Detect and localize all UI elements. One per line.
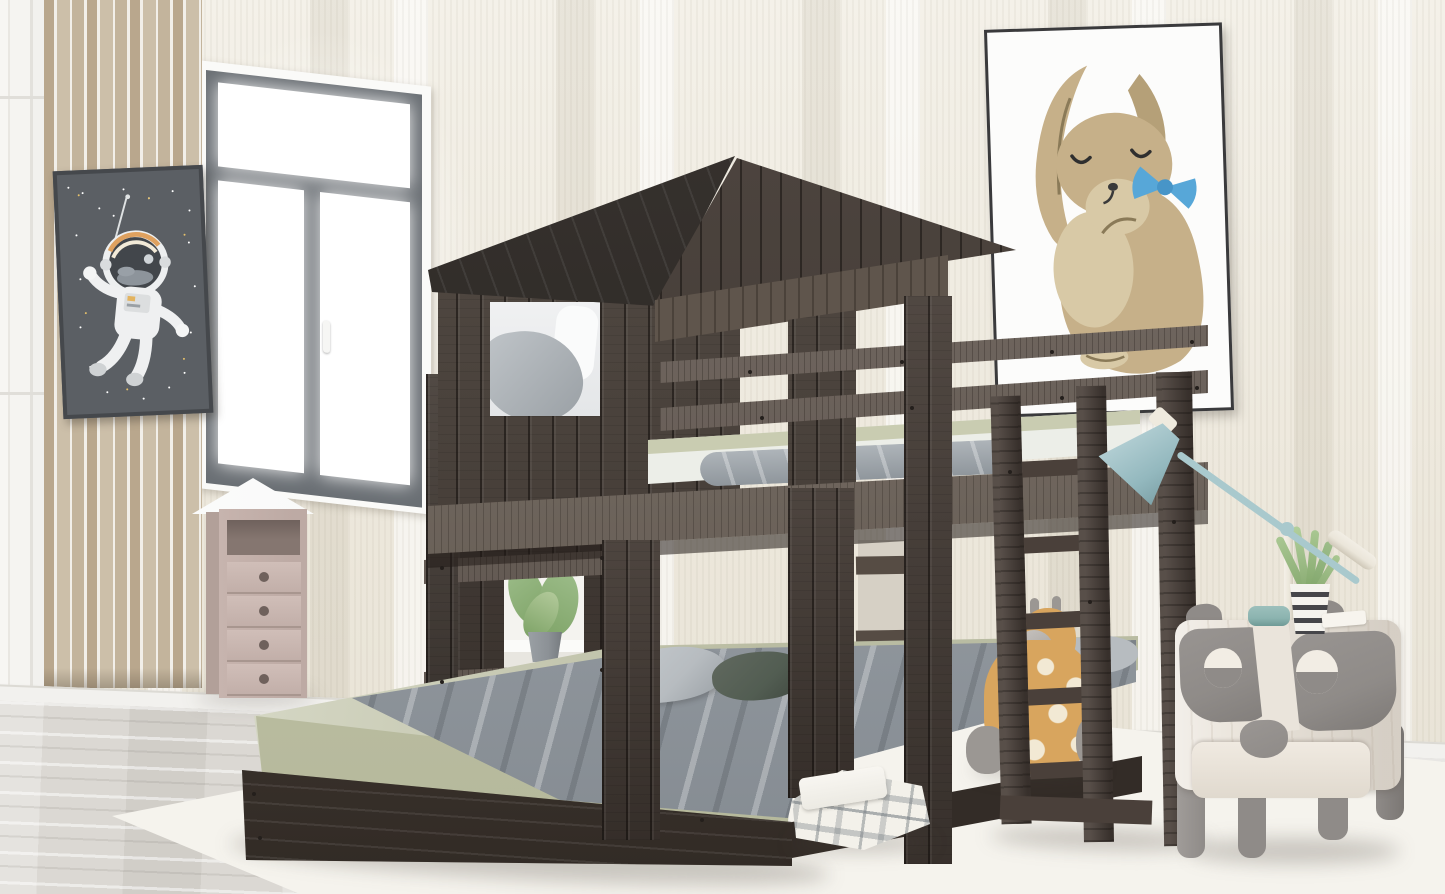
astronaut-illustration	[57, 169, 201, 407]
window-casement-right-pane	[320, 192, 410, 485]
bunny-poster	[984, 22, 1234, 417]
window	[197, 60, 431, 515]
astronaut-poster	[53, 165, 214, 419]
floor-lamp-pole	[1284, 528, 1293, 644]
window-handle	[323, 320, 330, 353]
door-trim-molding	[0, 96, 46, 99]
window-casement-left-pane	[218, 180, 304, 473]
bedroom-scene	[0, 0, 1445, 894]
left-white-wall	[0, 0, 46, 710]
bunny-illustration	[987, 34, 1224, 401]
slat-panel-bottom-shadow	[44, 668, 202, 688]
door-trim-molding	[0, 392, 46, 395]
